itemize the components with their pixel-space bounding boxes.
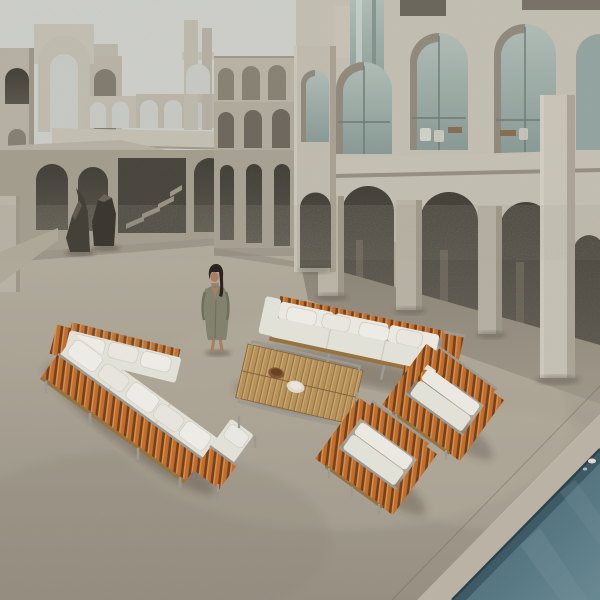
photo-scene: A woman in an olive wrap dress stands in… [0,0,600,600]
vignette [0,0,600,600]
courtyard-photo [0,0,600,600]
